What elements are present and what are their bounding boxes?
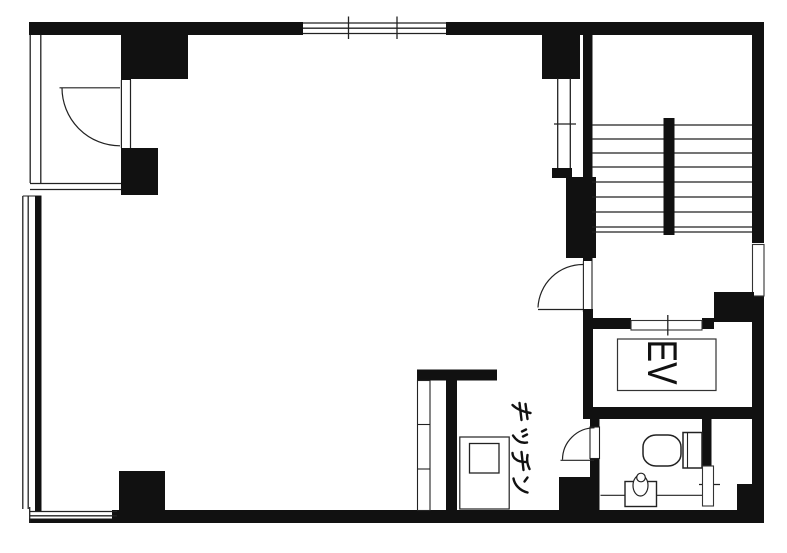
svg-text:EV: EV — [639, 340, 686, 385]
